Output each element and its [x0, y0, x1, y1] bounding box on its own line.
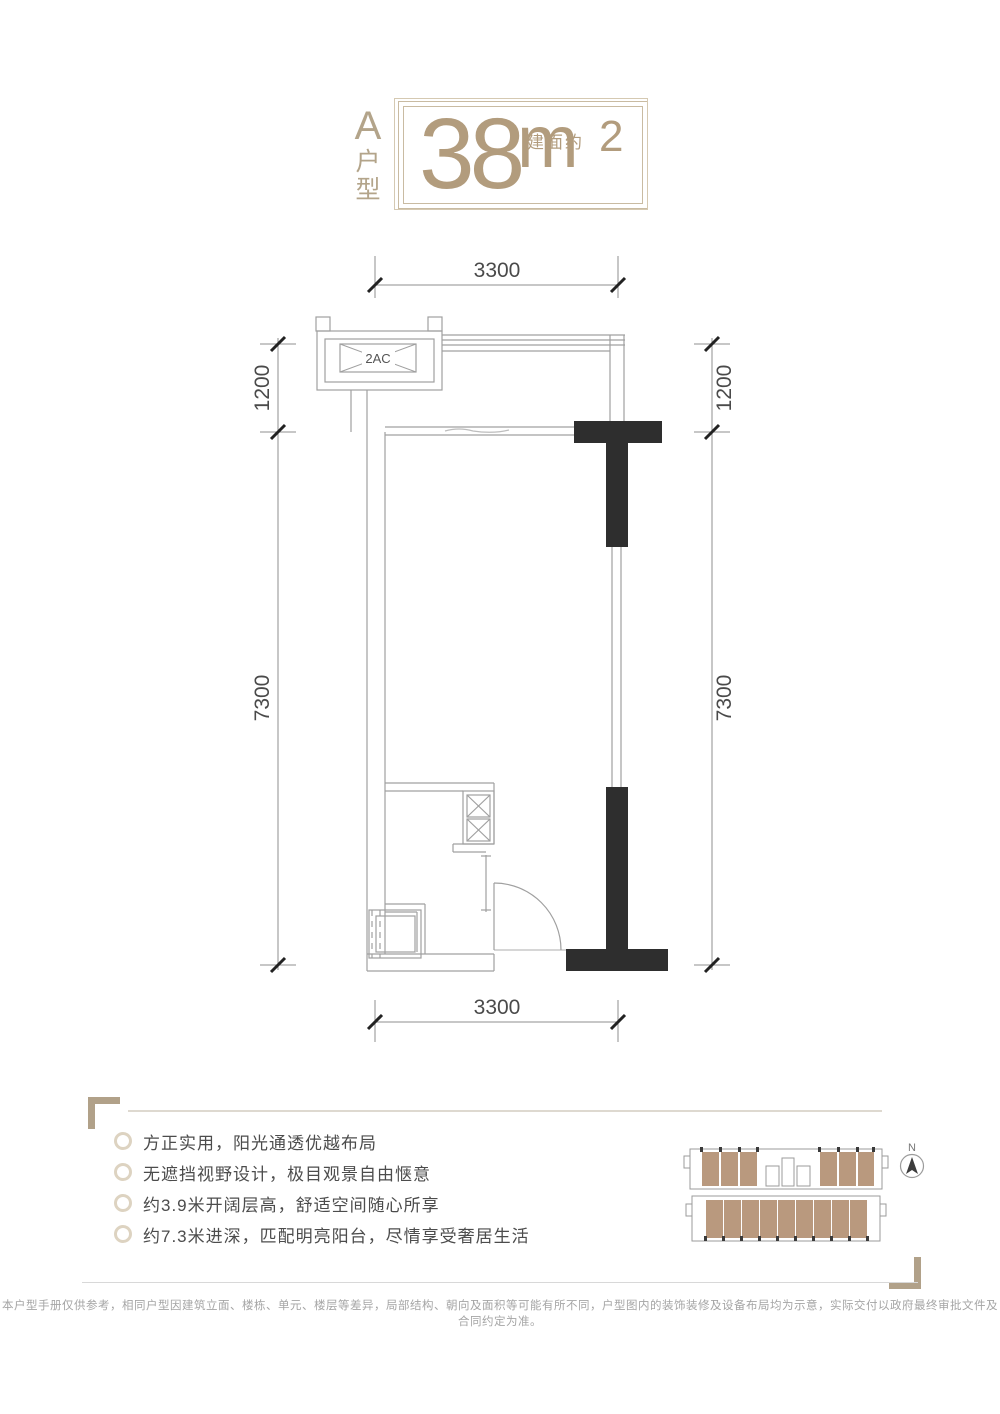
feature-text: 方正实用，阳光通透优越布局 [143, 1129, 377, 1154]
corner-bracket-top-left [88, 1097, 120, 1129]
bathroom-walls [385, 783, 494, 954]
area-number: 38 [419, 102, 520, 206]
shaft-boxes [463, 791, 494, 844]
unit-type-char-1: 户 [348, 150, 388, 175]
disclaimer-text: 本户型手册仅供参考，相同户型因建筑立面、楼栋、单元、楼层等差异，局部结构、朝向及… [0, 1297, 1000, 1329]
unit-label: A 户 型 [348, 106, 388, 203]
feature-list: 方正实用，阳光通透优越布局 无遮挡视野设计，极目观景自由惬意 约3.9米开阔层高… [114, 1132, 530, 1256]
feature-item: 无遮挡视野设计，极目观景自由惬意 [114, 1163, 530, 1181]
feature-item: 约3.9米开阔层高，舒适空间随心所享 [114, 1194, 530, 1212]
feature-text: 约7.3米进深，匹配明亮阳台，尽情享受奢居生活 [143, 1222, 530, 1247]
area-exponent: 2 [599, 112, 623, 162]
feature-item: 约7.3米进深，匹配明亮阳台，尽情享受奢居生活 [114, 1225, 530, 1243]
unit-type-char-2: 型 [348, 178, 388, 203]
area-badge: 38 建面约 m 2 [398, 101, 648, 209]
bullet-ring-icon [114, 1132, 132, 1150]
ac-unit-symbol: 2AC [340, 344, 416, 372]
dim-left-upper-label: 1200 [251, 365, 274, 412]
structural-walls [566, 421, 668, 971]
dim-left-lower-label: 7300 [251, 675, 274, 722]
balcony-window-band [442, 335, 625, 351]
bullet-ring-icon [114, 1225, 132, 1243]
area-unit: m [517, 90, 579, 194]
ac-platform-stub-right [428, 317, 442, 331]
dim-bottom-label: 3300 [474, 996, 521, 1019]
dimension-ticks [271, 278, 719, 1029]
north-compass: N [901, 1142, 924, 1178]
feature-item: 方正实用，阳光通透优越布局 [114, 1132, 530, 1150]
feature-text: 约3.9米开阔层高，舒适空间随心所享 [143, 1191, 440, 1216]
divider-line-bottom [82, 1282, 918, 1283]
feature-text: 无遮挡视野设计，极目观景自由惬意 [143, 1160, 431, 1185]
ac-label: 2AC [365, 351, 390, 366]
sill-line [385, 427, 574, 435]
floor-plan-walls [316, 317, 625, 971]
dim-right-upper-label: 1200 [713, 365, 736, 412]
bullet-ring-icon [114, 1163, 132, 1181]
appliance-box [369, 910, 421, 958]
divider-line-top [128, 1110, 882, 1112]
unit-letter: A [348, 106, 388, 146]
side-window [612, 547, 621, 787]
bullet-ring-icon [114, 1194, 132, 1212]
north-label: N [908, 1142, 916, 1154]
entry-door [494, 883, 561, 950]
corner-bracket-bottom-right [889, 1257, 921, 1289]
ac-platform-stub-left [316, 317, 330, 331]
building-overview [684, 1147, 888, 1241]
dim-right-lower-label: 7300 [713, 675, 736, 722]
dim-top-label: 3300 [474, 259, 521, 282]
